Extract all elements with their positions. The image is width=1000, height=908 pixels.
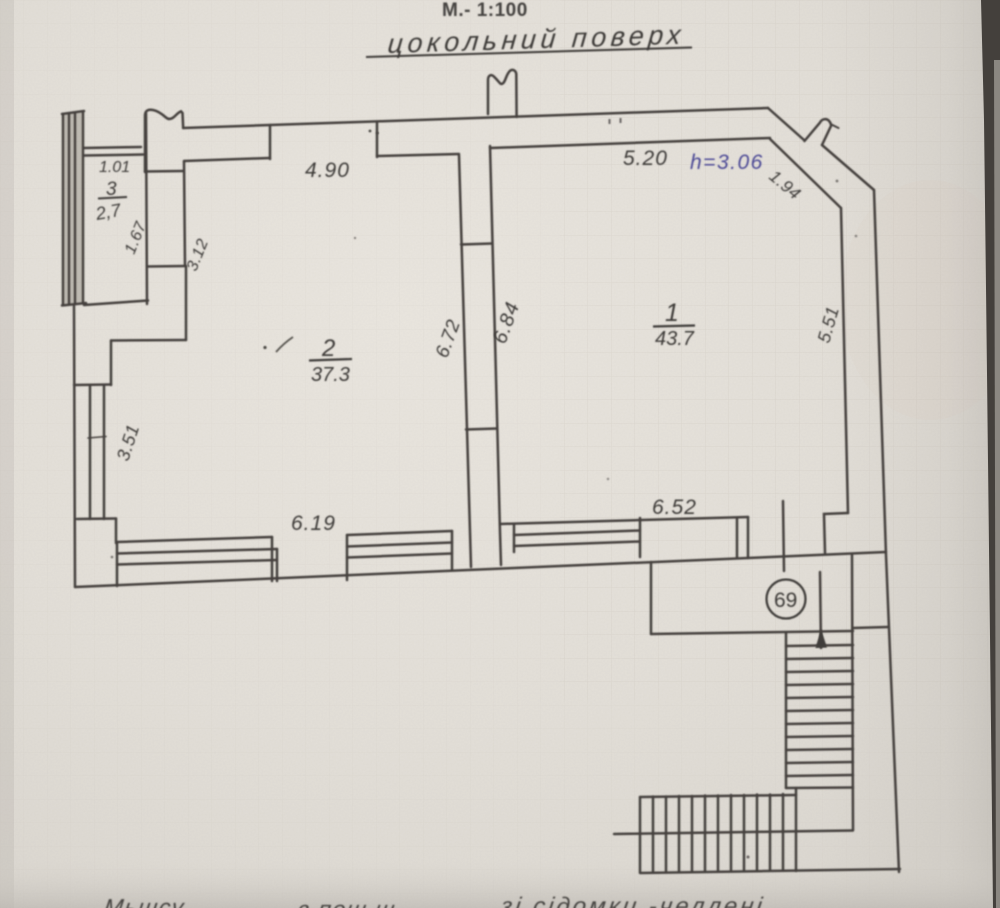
svg-text:69: 69 (774, 589, 797, 612)
svg-text:43.7: 43.7 (655, 328, 695, 350)
svg-text:в пош ш: в пош ш (295, 896, 398, 908)
svg-text:h=3.06: h=3.06 (690, 151, 764, 174)
svg-text:М.- 1:100: М.- 1:100 (442, 0, 528, 21)
svg-text:4.90: 4.90 (305, 159, 350, 182)
svg-text:6.52: 6.52 (652, 496, 697, 519)
svg-text:1: 1 (665, 299, 679, 327)
svg-text:1.01: 1.01 (99, 159, 130, 176)
svg-text:Мьшсу: Мьшсу (102, 894, 186, 908)
svg-text:2: 2 (321, 335, 335, 362)
svg-text:37.3: 37.3 (311, 364, 350, 386)
svg-text:6.19: 6.19 (291, 512, 336, 535)
svg-text:5.20: 5.20 (623, 147, 668, 170)
svg-text:зі сідомки -челлені: зі сідомки -челлені (498, 893, 767, 908)
